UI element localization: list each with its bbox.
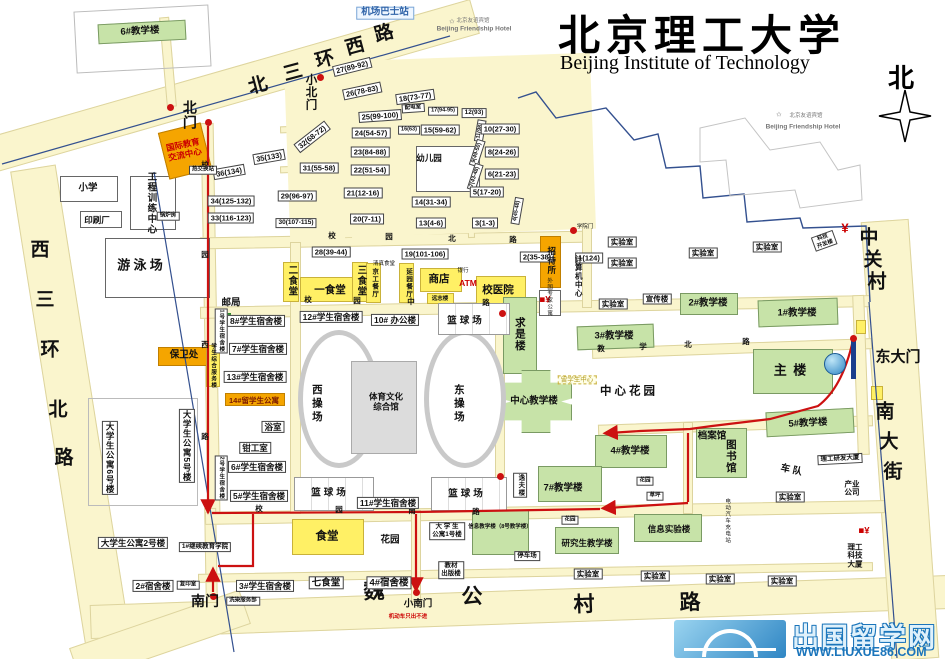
map-label: 实验室 <box>706 574 735 585</box>
map-label: 园 <box>201 251 209 259</box>
building <box>424 330 506 468</box>
map-label: 西 <box>30 239 49 260</box>
map-label: 15(59-62) <box>421 125 460 136</box>
map-label: 路 <box>742 338 750 346</box>
map-label: 信息教学楼（8号教学楼） <box>468 524 532 530</box>
map-label: 24(54-57) <box>352 128 391 139</box>
map-label: 14#留学生公寓 <box>229 397 279 405</box>
map-label: 信息实验楼 <box>648 525 691 535</box>
map-label: 游 泳 场 <box>117 259 163 274</box>
map-label: 34(125-132) <box>208 196 255 207</box>
map-label: 商店 <box>429 274 450 286</box>
map-label: 20(7-11) <box>350 214 384 225</box>
map-label: 2#教学楼 <box>688 299 727 310</box>
gate-dot-marker <box>205 119 212 126</box>
map-label: ATM <box>459 279 477 289</box>
map-label: 实验室 <box>574 569 603 580</box>
map-label: ¥ <box>841 222 848 237</box>
map-label: 大 <box>879 431 898 452</box>
gate-dot-marker <box>317 74 324 81</box>
map-label: 校医院 <box>482 285 514 297</box>
map-label: 33(116-123) <box>208 213 254 224</box>
map-label: 路 <box>509 236 517 244</box>
map-label: 12(93) <box>462 108 487 118</box>
gate-dot-marker <box>850 335 857 342</box>
map-label: 实验室 <box>776 492 805 503</box>
map-label: 路 <box>472 508 480 516</box>
map-label: 主 楼 <box>774 364 807 379</box>
map-label: 村 <box>573 593 595 617</box>
map-label: 关 <box>863 249 882 270</box>
map-label: 36(134) <box>212 164 245 180</box>
map-label: 2号学生宿舍楼 <box>215 455 228 500</box>
map-label: 35(133) <box>252 149 285 165</box>
map-label: 产业 公司 <box>845 481 860 498</box>
map-label: Beijing Friendship Hotel <box>437 25 512 32</box>
building <box>856 320 866 334</box>
map-label: 大学生公寓2号楼 <box>98 537 168 549</box>
map-label: 6(21-23) <box>485 169 519 180</box>
map-label: 西操场 <box>310 384 322 425</box>
map-label: 电动汽车充电站 <box>724 498 730 544</box>
map-label: 校 <box>255 505 263 513</box>
map-label: 10(27-30) <box>481 124 520 135</box>
map-label: 机动车只出不进 <box>389 614 428 620</box>
map-label: Beijing Friendship Hotel <box>766 123 841 130</box>
map-label: 1号学生宿舍楼 <box>215 308 228 353</box>
map-label: 学院门 <box>577 224 594 230</box>
map-label: 花园 <box>636 477 653 486</box>
map-label: 大学生公寓5号楼 <box>179 409 195 483</box>
map-label: 理工 科技 大厦 <box>848 543 863 568</box>
map-label: 东操场 <box>452 384 464 425</box>
map-label: 印刷厂 <box>84 216 110 226</box>
building <box>472 510 529 555</box>
map-label: 6#教学楼 <box>120 26 160 39</box>
logo-site-url: WWW.LIUXUE86.COM <box>796 645 927 659</box>
map-label: 复印室 <box>177 581 200 590</box>
site-watermark: 出国留学网 WWW.LIUXUE86.COM <box>672 618 945 659</box>
map-label: 中心教学楼 <box>510 397 558 408</box>
gate-dot-marker <box>499 310 506 317</box>
map-label: 21(12-16) <box>344 188 383 199</box>
map-label: 南 <box>875 401 894 422</box>
map-label: 小学 <box>78 184 97 195</box>
map-label: 4#教学楼 <box>610 447 649 458</box>
map-label: 研究生教学楼 <box>561 539 612 549</box>
map-label: 园 <box>385 233 393 241</box>
map-label: 校 <box>304 296 312 304</box>
map-label: 篮球场 <box>447 317 485 328</box>
map-label: 一食堂 <box>314 285 346 297</box>
map-label: 19(101-106) <box>402 249 449 260</box>
map-label: 环 <box>40 339 59 360</box>
campus-map: 北京理工大学 Beijing Institute of Technology 北… <box>0 0 945 659</box>
map-label: 清真食堂 <box>373 261 395 267</box>
north-gate-label: 北门 <box>180 100 196 130</box>
map-label: 23(84-88) <box>351 147 390 158</box>
road <box>683 422 693 514</box>
map-label: 31(55-58) <box>300 163 339 174</box>
map-label: 三 <box>35 289 54 310</box>
map-label: 13(4-6) <box>416 218 446 229</box>
map-label: 22(51-54) <box>351 165 390 176</box>
map-label: 北 <box>48 399 67 420</box>
gate-dot-marker <box>570 227 577 234</box>
building <box>851 337 856 379</box>
map-label: 园 <box>353 297 361 305</box>
map-label: 七食堂 <box>309 576 344 589</box>
map-label: 草坪 <box>646 492 663 501</box>
map-label: 远志楼 <box>432 296 449 302</box>
map-label: 体育文化 综合馆 <box>369 392 403 411</box>
map-label: 招待所 <box>546 247 556 276</box>
south-gate-label: 南门 <box>191 595 219 611</box>
map-label: 计算机中心 <box>574 255 582 298</box>
map-label: 17(94-95) <box>428 107 458 116</box>
map-label: 实验室 <box>608 237 637 248</box>
map-label: 12#学生宿舍楼 <box>300 311 363 323</box>
map-label: 配电室 <box>401 103 424 113</box>
map-label: 14(31-34) <box>412 197 451 208</box>
map-label: 停车场 <box>514 551 540 561</box>
map-label: 28(39-44) <box>312 247 351 258</box>
map-label: 教 <box>597 345 605 353</box>
map-label: 11#学生宿舍楼 <box>357 497 419 509</box>
map-label: 5#教学楼 <box>788 418 828 431</box>
map-label: 路 <box>679 591 701 615</box>
map-label: 7#学生宿舍楼 <box>229 343 287 355</box>
map-label: 实验室 <box>641 571 670 582</box>
map-label: 中 <box>859 227 878 248</box>
subway-entrance-marker <box>824 353 846 375</box>
map-label: 公 <box>461 585 483 609</box>
map-label: 钳工室 <box>239 442 271 454</box>
map-label: 3#教学楼 <box>594 332 633 343</box>
map-label: 学生综合服务楼 <box>210 343 216 389</box>
map-label: 档案馆 <box>698 432 727 443</box>
map-label: 实验室 <box>689 248 718 259</box>
map-label: 求是楼 <box>513 317 525 352</box>
small-south-gate-label: 小南门 <box>404 600 433 611</box>
map-label: 宣传楼 <box>643 294 672 305</box>
bridge-deck-icon <box>684 648 776 651</box>
map-label: 29(96-97) <box>278 191 317 202</box>
map-label: 6#学生宿舍楼 <box>228 461 286 473</box>
map-label: 园 <box>335 506 343 514</box>
map-label: 洗染服务部 <box>226 597 260 606</box>
map-label: 学 <box>639 343 647 351</box>
small-north-gate-label: 小北门 <box>304 73 317 111</box>
map-label: 食堂 <box>316 531 339 544</box>
airport-bus-stop-label: 机场巴士站 <box>356 7 414 20</box>
map-label: 留学生中心 <box>558 375 597 384</box>
map-label: 8#学生宿舍楼 <box>227 315 285 327</box>
map-label: ■¥ <box>858 527 869 538</box>
map-label: 保卫处 <box>170 351 199 362</box>
map-label: 7#教学楼 <box>543 484 582 495</box>
map-label: 10# 办公楼 <box>371 314 419 326</box>
map-label: 校 <box>328 232 336 240</box>
map-label: 篮球场 <box>311 489 349 500</box>
map-label: 中心花园 <box>600 386 658 399</box>
map-label: 理工研发大厦 <box>817 453 862 465</box>
gate-dot-marker <box>497 473 504 480</box>
map-label: 1#继续教育学院 <box>179 542 231 552</box>
map-label: 3(1-3) <box>472 218 498 229</box>
map-label: 热交换站 <box>189 166 217 175</box>
map-label: 篮球场 <box>448 490 486 501</box>
road <box>582 228 592 308</box>
map-label: 西 <box>201 341 209 349</box>
map-label: 大学生公寓6号楼 <box>102 421 118 495</box>
map-label: 大 学 生 公寓1号楼 <box>429 522 465 540</box>
map-label: 8(24-26) <box>485 147 519 158</box>
gate-dot-marker <box>167 104 174 111</box>
map-label: 北 <box>684 341 692 349</box>
map-label: ✩ <box>776 111 781 118</box>
map-label: 教材 出版楼 <box>438 561 464 579</box>
map-label: 逸夫楼 <box>513 473 527 498</box>
map-label: 花园 <box>561 516 578 525</box>
map-label: 实验室 <box>608 258 637 269</box>
map-label: 幼儿园 <box>416 154 442 164</box>
map-label: 延园餐厅 <box>404 268 411 298</box>
map-label: 车 队 <box>779 464 802 479</box>
map-label: 京工餐厅 <box>370 268 377 298</box>
map-label: 外国专家公寓 <box>546 278 552 317</box>
gate-dot-marker <box>413 589 420 596</box>
map-label: 北京友谊宾馆 <box>789 113 822 119</box>
map-label: 花园 <box>380 536 399 547</box>
map-label: 街 <box>883 461 902 482</box>
map-label: 图书馆 <box>724 439 736 474</box>
map-label: 4#宿舍楼 <box>366 576 411 589</box>
map-label: 3#学生宿舍楼 <box>236 580 294 592</box>
map-label: 路 <box>54 447 73 468</box>
map-label: 银行 <box>457 268 468 274</box>
map-label: 5(17-20) <box>470 187 504 198</box>
page-subtitle: Beijing Institute of Technology <box>560 52 860 75</box>
compass-north-label: 北 <box>888 58 914 95</box>
map-label: 三食堂 <box>355 265 366 297</box>
map-label: 30(107-115) <box>275 218 316 228</box>
map-label: 实验室 <box>753 242 782 253</box>
campus-boundary-line <box>700 118 862 208</box>
map-label: 2#宿舍楼 <box>133 580 174 592</box>
map-label: 浴室 <box>261 421 284 433</box>
map-label: 路 <box>201 433 209 441</box>
map-label: 中 <box>407 298 415 306</box>
map-label: 实验室 <box>768 576 797 587</box>
map-label: 5#学生宿舍楼 <box>230 490 288 502</box>
map-label: 1#教学楼 <box>777 309 816 320</box>
map-label: 科技 开发楼 <box>811 230 837 252</box>
map-label: 16(63) <box>398 126 420 135</box>
map-label: 路 <box>482 299 490 307</box>
map-label: 北京友谊宾馆 <box>456 18 489 24</box>
map-label: 二食堂 <box>286 265 297 297</box>
map-label: 锅炉房 <box>157 212 180 221</box>
bridge-logo-icon <box>674 620 786 658</box>
map-label: 村 <box>867 271 886 292</box>
east-gate-label: 东大门 <box>875 350 920 367</box>
building <box>871 386 883 400</box>
bridge-arch-icon <box>702 629 758 657</box>
map-label: 实验室 <box>599 299 628 310</box>
map-label: 北 <box>448 235 456 243</box>
map-label: 13#学生宿舍楼 <box>224 371 287 383</box>
map-label: 工程训练中心 <box>145 172 156 235</box>
